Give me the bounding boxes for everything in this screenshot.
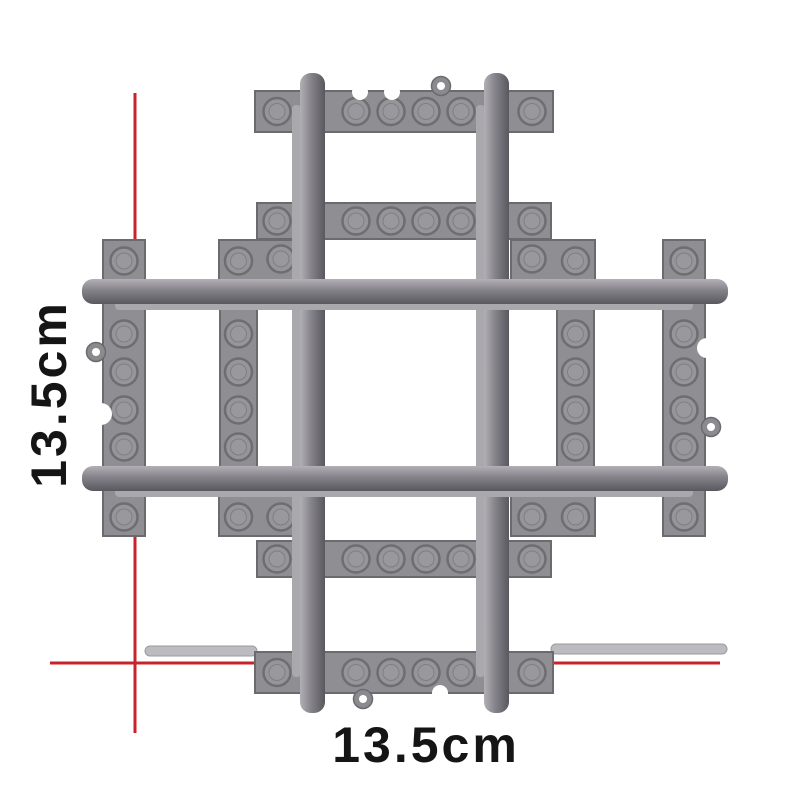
edge-notch — [432, 685, 448, 701]
stud-center — [116, 402, 132, 418]
product-image: 13.5cm 13.5cm — [0, 0, 800, 800]
stud-center — [568, 439, 584, 455]
edge-notch — [697, 338, 717, 358]
stud-center — [231, 509, 247, 525]
stud-center — [269, 665, 285, 681]
stud-center — [383, 551, 399, 567]
vertical-dimension-label: 13.5cm — [20, 300, 78, 488]
stud-center — [453, 213, 469, 229]
stud-center — [348, 551, 364, 567]
side-strip — [145, 646, 257, 656]
sleeper-plates — [103, 91, 705, 693]
stud-center — [676, 253, 692, 269]
rail-horizontal — [82, 466, 728, 491]
stud-center — [453, 104, 469, 120]
side-strip — [551, 644, 727, 654]
stud-center — [383, 213, 399, 229]
rail-vertical — [300, 73, 325, 713]
stud-center — [524, 213, 540, 229]
rail-horizontal — [82, 279, 728, 304]
stud-center — [453, 665, 469, 681]
studs — [111, 98, 698, 686]
connector-ring-hole — [359, 695, 367, 703]
stud-center — [524, 104, 540, 120]
rail-flange-vertical — [476, 105, 485, 677]
edge-notch — [384, 84, 400, 100]
stud-center — [418, 104, 434, 120]
stud-center — [231, 364, 247, 380]
stud-center — [568, 326, 584, 342]
stud-center — [273, 251, 289, 267]
stud-center — [269, 213, 285, 229]
stud-center — [116, 364, 132, 380]
horizontal-dimension-label: 13.5cm — [332, 716, 520, 774]
edge-notch — [352, 84, 368, 100]
connector-ring-hole — [707, 423, 715, 431]
stud-center — [676, 439, 692, 455]
stud-center — [383, 665, 399, 681]
stud-center — [524, 509, 540, 525]
stud-center — [116, 326, 132, 342]
connector-ring-hole — [437, 82, 445, 90]
edge-notch — [90, 403, 112, 425]
stud-center — [269, 104, 285, 120]
stud-center — [568, 402, 584, 418]
stud-center — [418, 213, 434, 229]
stud-center — [568, 364, 584, 380]
stud-center — [676, 364, 692, 380]
stud-center — [231, 402, 247, 418]
rail-flange-vertical — [292, 105, 301, 677]
connector-ring-hole — [92, 348, 100, 356]
stud-center — [269, 551, 285, 567]
rail-vertical — [484, 73, 509, 713]
stud-center — [524, 551, 540, 567]
stud-center — [116, 253, 132, 269]
stud-center — [348, 104, 364, 120]
stud-center — [418, 551, 434, 567]
stud-center — [676, 326, 692, 342]
stud-center — [231, 253, 247, 269]
stud-center — [418, 665, 434, 681]
stud-center — [676, 402, 692, 418]
stud-center — [568, 509, 584, 525]
train-track-crossing-graphic — [0, 0, 800, 800]
stud-center — [231, 439, 247, 455]
stud-center — [524, 251, 540, 267]
stud-center — [231, 326, 247, 342]
stud-center — [348, 213, 364, 229]
stud-center — [524, 665, 540, 681]
stud-center — [453, 551, 469, 567]
stud-center — [568, 253, 584, 269]
stud-center — [273, 509, 289, 525]
stud-center — [383, 104, 399, 120]
stud-center — [676, 509, 692, 525]
stud-center — [116, 509, 132, 525]
stud-center — [348, 665, 364, 681]
stud-center — [116, 439, 132, 455]
